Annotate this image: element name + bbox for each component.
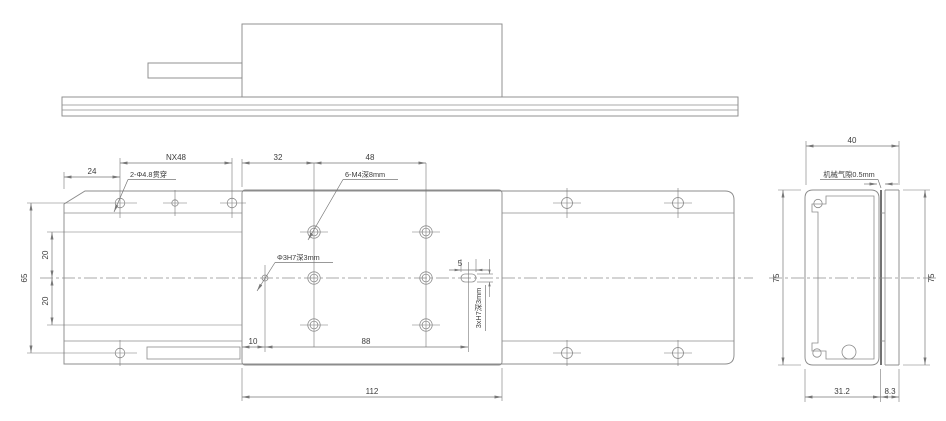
dim-nx48: NX48 [166,153,187,162]
air-gap-note: 机械气隙0.5mm [820,170,898,188]
note-m4-holes: 6-M4深8mm [345,170,385,179]
note-through-holes: 2-Φ4.8贯穿 [130,170,167,179]
dim-32: 32 [274,153,283,162]
carriage-cable-tab [147,347,240,359]
dim-88: 88 [362,337,371,346]
side-carriage-block [242,24,502,97]
note-slot-spec: 3xH7深3mm [474,288,483,329]
side-connector-tab [148,63,242,78]
dim-31-2: 31.2 [834,387,850,396]
plan-view: 24 NX48 32 48 65 20 20 10 88 112 [20,153,753,401]
dim-48: 48 [366,153,375,162]
end-screw-hole-top [814,199,822,207]
dim-5: 5 [458,259,463,268]
dim-10: 10 [249,337,258,346]
carriage-plate [147,190,502,365]
dim-8-3: 8.3 [884,387,896,396]
end-bottom-bore [842,345,856,359]
note-dowel-hole: Φ3H7深3mm [277,253,320,262]
dim-40: 40 [848,136,857,145]
dim-20-upper: 20 [41,250,50,259]
dim-20-lower: 20 [41,296,50,305]
cad-canvas: 24 NX48 32 48 65 20 20 10 88 112 [0,0,946,421]
dim-75-left: 75 [772,273,781,282]
dim-75-right: 75 [927,273,936,282]
plan-leader-notes: 2-Φ4.8贯穿 6-M4深8mm Φ3H7深3mm 3xH7深3mm [114,170,486,331]
forcer-body-outline [805,190,879,365]
base-plate-outline [27,191,734,364]
dim-112: 112 [366,387,379,396]
side-view [62,24,738,116]
end-view: 40 75 75 31.2 8.3 机械气隙0.5mm [769,136,937,402]
dim-24: 24 [88,167,97,176]
note-air-gap: 机械气隙0.5mm [823,170,875,179]
drawing-sheet: 24 NX48 32 48 65 20 20 10 88 112 [0,0,946,421]
magnet-plate [881,190,899,365]
dim-65: 65 [20,273,29,282]
end-screw-hole-bottom [813,349,821,357]
base-mounting-holes [115,158,692,366]
side-rail [62,97,738,116]
